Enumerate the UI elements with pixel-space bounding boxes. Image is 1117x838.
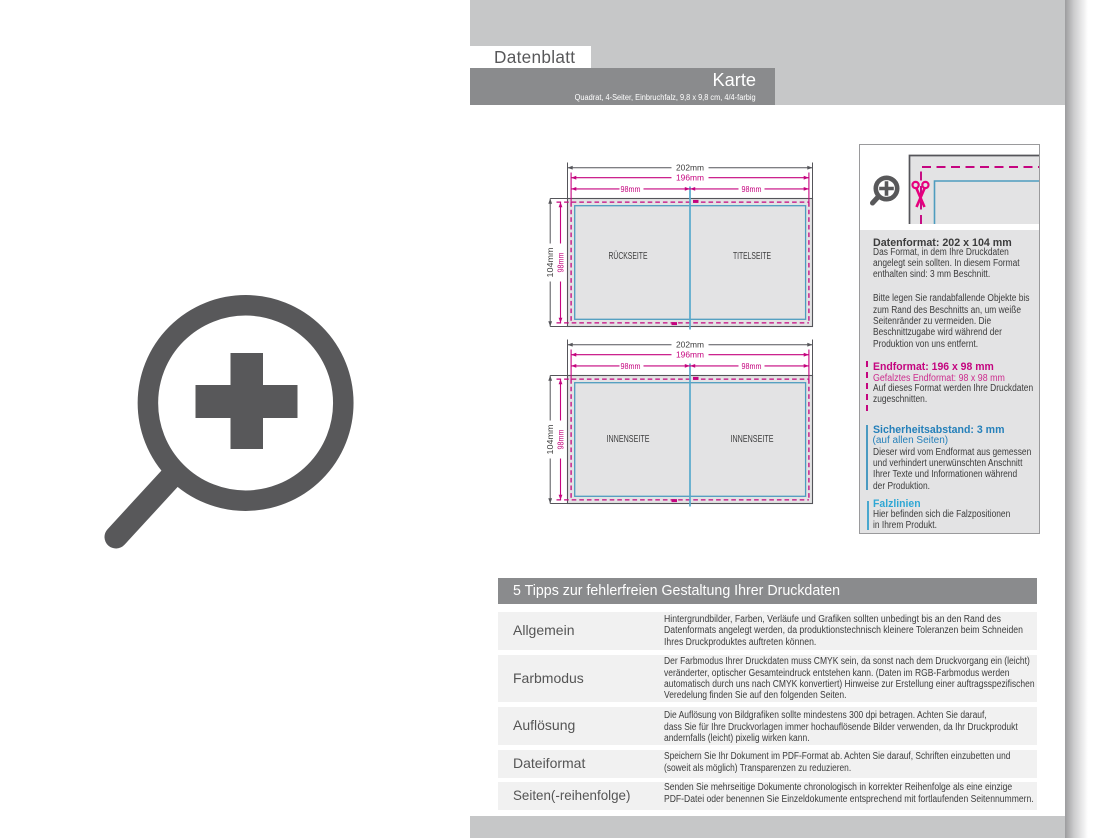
svg-text:TITELSEITE: TITELSEITE — [733, 251, 771, 262]
svg-text:INNENSEITE: INNENSEITE — [731, 434, 774, 445]
svg-text:RÜCKSEITE: RÜCKSEITE — [609, 250, 648, 262]
svg-text:INNENSEITE: INNENSEITE — [607, 434, 650, 445]
